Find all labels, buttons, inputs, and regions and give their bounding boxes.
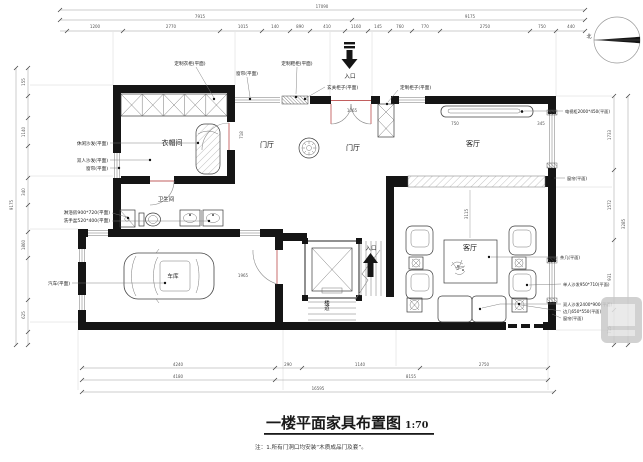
dim-bottom-seg: 4180 bbox=[173, 374, 184, 379]
dim-bottom-seg: 4240 bbox=[173, 362, 184, 367]
window-living-right-upper bbox=[547, 110, 557, 168]
dimension-bottom: 4240 290 1140 2750 4180 8155 16595 bbox=[80, 362, 556, 394]
bathroom-fixtures bbox=[120, 210, 223, 227]
dim-top-seg: 1200 bbox=[90, 24, 101, 29]
dim-interior: 3115 bbox=[464, 208, 469, 219]
drawing-title: 一楼平面家具布置图 bbox=[266, 414, 401, 432]
title-block: 一楼平面家具布置图 1:70 注：1.所有门洞口均安装“木质成品门及套”。 bbox=[255, 414, 434, 451]
side-table bbox=[512, 257, 526, 269]
label-curtain-right-lower: 窗帘(平面) bbox=[563, 315, 583, 322]
sofa bbox=[438, 296, 506, 322]
plant-sketch bbox=[451, 260, 465, 275]
drawing-note: 注：1.所有门洞口均安装“木质成品门及套”。 bbox=[255, 443, 367, 451]
drawing-scale: 1:70 bbox=[405, 420, 429, 431]
label-tv-cabinet: 电视柜2000*450(平面) bbox=[565, 108, 610, 115]
dim-left-seg: 340 bbox=[21, 188, 26, 196]
title-underline bbox=[264, 433, 434, 435]
toilet bbox=[139, 213, 161, 226]
dim-top-seg: 750 bbox=[538, 24, 546, 29]
label-shower: 淋浴房900*720(平面) bbox=[64, 209, 111, 216]
entrance-arrow-down-icon bbox=[342, 59, 358, 69]
label-lounge-sofa: 休闲沙发(平面) bbox=[77, 140, 108, 147]
dim-interior: 750 bbox=[451, 121, 459, 126]
sofa-set bbox=[406, 226, 536, 322]
entrance-stairs: 入口 bbox=[363, 245, 378, 277]
door-garage bbox=[253, 250, 277, 284]
entry-shoe-cabinet bbox=[378, 104, 394, 137]
dim-top-seg: 1015 bbox=[238, 24, 249, 29]
foyer-round-table bbox=[299, 138, 319, 158]
dim-interior: 1965 bbox=[238, 273, 249, 278]
label-curtain-top: 窗帘(平面) bbox=[236, 70, 258, 77]
stairs bbox=[308, 241, 381, 320]
dim-ticks-top bbox=[58, 8, 587, 33]
dim-left-seg: 1140 bbox=[21, 126, 26, 137]
entrance-top: 入口 bbox=[342, 42, 358, 80]
room-label-living-lower: 客厅 bbox=[463, 243, 477, 252]
label-washbasin: 洗手盆520*400(平面) bbox=[64, 217, 111, 224]
room-label-living-top: 客厅 bbox=[466, 139, 480, 148]
dim-left-seg: 155 bbox=[21, 78, 26, 86]
armchair bbox=[406, 226, 433, 255]
room-label-garage: 车库 bbox=[167, 272, 179, 280]
floor-transition-band bbox=[408, 176, 545, 187]
dim-left-total: 9175 bbox=[9, 199, 14, 210]
armchair bbox=[509, 270, 536, 299]
chaise-lounge bbox=[196, 124, 220, 174]
dim-bottom-seg: 8155 bbox=[406, 374, 417, 379]
dim-interior: 345 bbox=[537, 121, 545, 126]
dim-interior: 1065 bbox=[347, 108, 358, 113]
dim-top-seg: 770 bbox=[421, 24, 429, 29]
label-curtain-left: 窗帘(平面) bbox=[86, 165, 108, 172]
dim-right-seg: 1572 bbox=[607, 199, 612, 210]
dim-interior: 718 bbox=[239, 131, 244, 139]
room-label-foyer-right: 门厅 bbox=[346, 143, 360, 152]
dim-top-total: 17090 bbox=[316, 4, 329, 9]
dim-bottom-seg: 2750 bbox=[479, 362, 490, 367]
dim-top-seg: 890 bbox=[296, 24, 304, 29]
label-custom-cabinet: 定制柜子(平面) bbox=[400, 84, 431, 91]
dim-top-seg: 1160 bbox=[351, 24, 362, 29]
side-table bbox=[409, 257, 423, 269]
dim-top-seg: 2770 bbox=[166, 24, 177, 29]
room-label-bathroom: 卫生间 bbox=[158, 195, 174, 203]
washbasin bbox=[180, 210, 200, 226]
room-label-stairwell: 楼道 bbox=[323, 299, 330, 312]
label-single-sofa: 单人沙发950*710(平面) bbox=[563, 281, 610, 288]
walls bbox=[78, 85, 556, 330]
tv-console bbox=[441, 106, 533, 117]
side-table bbox=[407, 298, 422, 312]
label-car: 汽车(平面) bbox=[48, 280, 70, 287]
watermark-logo bbox=[601, 297, 642, 343]
window-living-top bbox=[399, 96, 425, 104]
dim-top-seg: 760 bbox=[396, 24, 404, 29]
dim-right-total: 3285 bbox=[621, 218, 626, 229]
elevator bbox=[302, 238, 362, 301]
dim-top-seg: 410 bbox=[323, 24, 331, 29]
label-side-table: 边几650*550(平面) bbox=[563, 308, 601, 315]
dim-bottom-total: 16595 bbox=[312, 386, 325, 391]
floorplan-drawing: 17090 7915 9175 1200 2770 1015 140 890 4… bbox=[0, 0, 643, 462]
window-living-right-lower bbox=[547, 258, 557, 303]
arrow-shaft bbox=[347, 50, 353, 60]
dim-left-seg: 1860 bbox=[21, 239, 26, 250]
dim-right-seg: 931 bbox=[607, 273, 612, 281]
floorplan-page: 17090 7915 9175 1200 2770 1015 140 890 4… bbox=[0, 0, 643, 462]
label-entry-cabinet: 玄关柜子(平面) bbox=[327, 84, 358, 91]
annotations-left: 休闲沙发(平面) 双人沙发(平面) 窗帘(平面) 淋浴房900*720(平面) … bbox=[48, 140, 210, 287]
label-custom-wardrobe: 定制衣柜(平面) bbox=[174, 60, 205, 67]
label-double-sofa: 双人沙发(平面) bbox=[77, 157, 108, 164]
north-compass: 北 bbox=[586, 17, 640, 63]
dim-top-seg: 440 bbox=[567, 24, 575, 29]
dim-ticks-left bbox=[14, 66, 30, 347]
compass-north-label: 北 bbox=[586, 33, 591, 40]
label-shoe-cabinet: 定制鞋柜(平面) bbox=[281, 60, 312, 67]
dimension-left: 9175 155 1140 340 1860 625 bbox=[9, 66, 30, 347]
dim-left-seg: 625 bbox=[21, 311, 26, 319]
window-cloakroom-left bbox=[113, 153, 121, 178]
entrance-top-label: 入口 bbox=[344, 73, 355, 80]
label-curtain-right-upper: 窗帘(平面) bbox=[567, 175, 587, 182]
dim-top-seg: 140 bbox=[271, 24, 279, 29]
annotations-right: 电视柜2000*450(平面) 窗帘(平面) 茶几(平面) 单人沙发950*71… bbox=[479, 108, 613, 322]
entrance-arrow-up-icon bbox=[363, 253, 378, 263]
entrance-stairs-label: 入口 bbox=[365, 245, 376, 252]
dim-bottom-seg: 1140 bbox=[355, 362, 366, 367]
dim-right-seg: 1733 bbox=[607, 129, 612, 140]
doors bbox=[150, 101, 371, 285]
armchair bbox=[509, 226, 536, 255]
dim-top-r2b: 9175 bbox=[465, 14, 476, 19]
label-coffee-table: 茶几(平面) bbox=[560, 254, 580, 261]
room-label-cloakroom: 衣帽间 bbox=[162, 138, 183, 147]
room-label-foyer-left: 门厅 bbox=[260, 140, 274, 149]
dimension-top: 17090 7915 9175 1200 2770 1015 140 890 4… bbox=[58, 4, 587, 33]
armchair bbox=[406, 270, 433, 299]
dim-bottom-seg: 290 bbox=[284, 362, 292, 367]
windows bbox=[80, 96, 558, 310]
dim-top-r2a: 7915 bbox=[195, 14, 206, 19]
dim-top-seg: 2750 bbox=[480, 24, 491, 29]
dim-top-seg: 145 bbox=[374, 24, 382, 29]
wardrobe-unit bbox=[121, 94, 227, 116]
washbasin bbox=[203, 210, 223, 226]
